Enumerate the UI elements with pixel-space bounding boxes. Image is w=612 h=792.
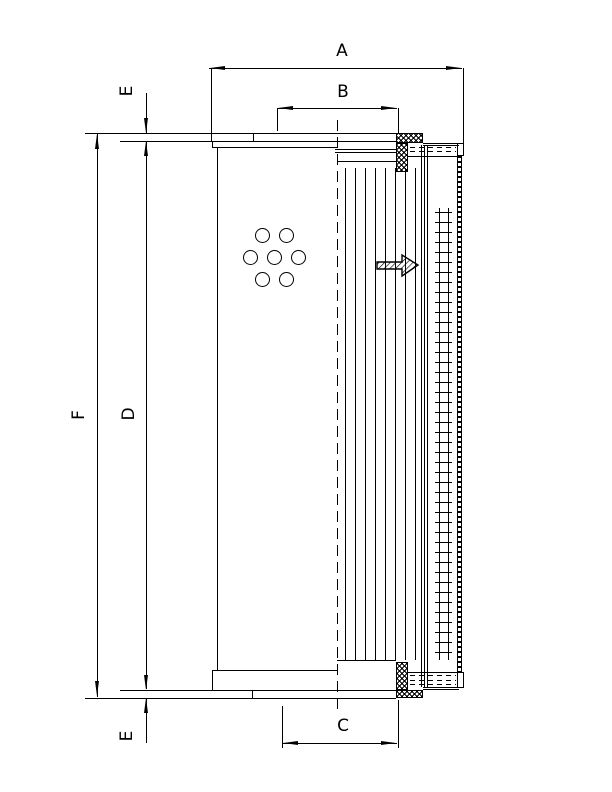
perforation-hole [291, 250, 306, 265]
top-thread-dashes [410, 147, 456, 148]
ladder-rung [435, 262, 452, 263]
perforation-hole [255, 228, 270, 243]
ladder-rung [435, 302, 452, 303]
ladder-rung [435, 502, 452, 503]
ladder-rung [435, 632, 452, 633]
ladder-rung [435, 592, 452, 593]
ladder-rung [435, 392, 452, 393]
dim-arrowhead-left [210, 66, 225, 70]
top-cap-inner-edge [337, 161, 396, 162]
dim-line-d [146, 141, 147, 689]
ladder-rung [435, 322, 452, 323]
body-left-wall [217, 147, 218, 670]
ladder-rung [435, 342, 452, 343]
bottom-thread-dashes [410, 684, 456, 685]
bottom-shell-edge [423, 689, 459, 690]
dim-label-e-bottom: E [117, 726, 137, 746]
ladder-rung [435, 612, 452, 613]
dim-line-a [209, 68, 462, 69]
top-lip-bottom-edge [120, 141, 396, 142]
ladder-rung [435, 422, 452, 423]
ladder-rung [435, 292, 452, 293]
ladder-rung [435, 242, 452, 243]
perforation-hole [279, 228, 294, 243]
dim-arrowhead-right [446, 66, 461, 70]
dim-arrowhead-up [144, 698, 148, 713]
ladder-rung [435, 312, 452, 313]
bottom-cap-top-edge [212, 670, 337, 671]
ladder-rung [435, 642, 452, 643]
top-shell-edge [423, 143, 459, 144]
dim-arrowhead-left [278, 106, 293, 110]
dim-arrowhead-up [95, 134, 99, 149]
perforation-hole [279, 272, 294, 287]
ladder-rung [435, 622, 452, 623]
bottom-thread-dashes [410, 680, 456, 681]
top-lip-top-edge [85, 133, 396, 134]
ladder-rung [435, 362, 452, 363]
ladder-rung [435, 372, 452, 373]
top-cap-step [212, 141, 213, 147]
ladder-rung [435, 442, 452, 443]
flow-direction-arrow [374, 250, 420, 280]
ladder-rung [435, 402, 452, 403]
top-shell-edge [423, 145, 459, 146]
perforation-hole [267, 250, 282, 265]
pleat-line [395, 168, 396, 660]
bottom-lip-seam [252, 690, 253, 698]
bottom-thread-dashes [410, 675, 456, 676]
perforation-hole [255, 272, 270, 287]
pleat-line [375, 168, 376, 660]
core-tube-line [424, 145, 425, 687]
bottom-shell-edge [423, 687, 459, 688]
top-thread-bottom-edge [408, 156, 457, 157]
pleat-line [365, 168, 366, 660]
pleat-line [405, 168, 406, 660]
ladder-rung [435, 652, 452, 653]
dim-label-f: F [69, 405, 89, 425]
pleat-line [415, 168, 416, 660]
bottom-gasket-bar [396, 690, 423, 698]
dim-label-e-top: E [117, 81, 137, 101]
ladder-rung [435, 452, 452, 453]
dim-label-c: C [333, 716, 353, 736]
top-gasket-column [396, 143, 408, 172]
dim-arrowhead-right [381, 741, 396, 745]
ladder-rung [435, 482, 452, 483]
ladder-rung [435, 562, 452, 563]
ladder-rung [435, 332, 452, 333]
pleat-line [385, 168, 386, 660]
ladder-rung [435, 282, 452, 283]
top-lip-seam [253, 133, 254, 141]
ladder-rung [435, 412, 452, 413]
bottom-cap-step [212, 670, 213, 690]
ladder-rung [435, 222, 452, 223]
bottom-thread-top-edge [408, 672, 457, 673]
bottom-right-step [457, 672, 464, 688]
dim-arrowhead-down [144, 118, 148, 133]
dim-arrowhead-down [95, 681, 99, 696]
dim-ext-a-left [211, 68, 212, 141]
ladder-rung [435, 432, 452, 433]
ladder-rung [435, 272, 452, 273]
ladder-rung [435, 382, 452, 383]
bottom-lip-top-edge [120, 690, 396, 691]
ladder-rung [435, 492, 452, 493]
dim-ext-c-right [398, 700, 399, 748]
ladder-rung [435, 512, 452, 513]
ladder-rung [435, 212, 452, 213]
perforation-hole [243, 250, 258, 265]
ladder-rung [435, 462, 452, 463]
bottom-lip-bottom-edge [85, 698, 396, 699]
top-cap-section-line [335, 149, 396, 150]
dim-label-d: D [119, 404, 139, 424]
ladder-rung [435, 582, 452, 583]
pleat-line [345, 168, 346, 660]
ladder-rung [435, 352, 452, 353]
top-gasket-bar [396, 133, 423, 143]
ladder-rung [435, 602, 452, 603]
dim-label-a: A [332, 41, 352, 61]
dim-line-f [97, 133, 98, 697]
ladder-rung [435, 232, 452, 233]
ladder-rung [435, 472, 452, 473]
dim-ext-b-left [277, 108, 278, 131]
core-tube-line [421, 145, 422, 687]
pleat-line [355, 168, 356, 660]
centerline [337, 120, 338, 712]
outer-shell-seam-strip [457, 156, 462, 672]
ladder-rung [435, 542, 452, 543]
ladder-rung [435, 552, 452, 553]
dim-ext-a-right [463, 68, 464, 143]
ladder-rung [435, 252, 452, 253]
top-cap-section-line [335, 152, 396, 153]
ladder-rung [435, 572, 452, 573]
dim-line-c [282, 743, 397, 744]
top-thread-dashes [410, 151, 456, 152]
top-cap-step-edge [212, 147, 337, 148]
technical-drawing-canvas: A B C E F D E [0, 0, 612, 792]
dim-label-b: B [333, 82, 353, 102]
core-tube-line [427, 145, 428, 687]
dim-ext-b-right [398, 108, 399, 133]
ladder-rung [435, 522, 452, 523]
dim-line-b [277, 108, 397, 109]
dim-arrowhead-left [283, 741, 298, 745]
dim-arrowhead-up [144, 141, 148, 156]
dim-arrowhead-right [381, 106, 396, 110]
ladder-rung [435, 532, 452, 533]
bottom-gasket-column [396, 662, 408, 690]
dim-arrowhead-down [144, 675, 148, 690]
pleat-bottom-edge [337, 660, 396, 661]
